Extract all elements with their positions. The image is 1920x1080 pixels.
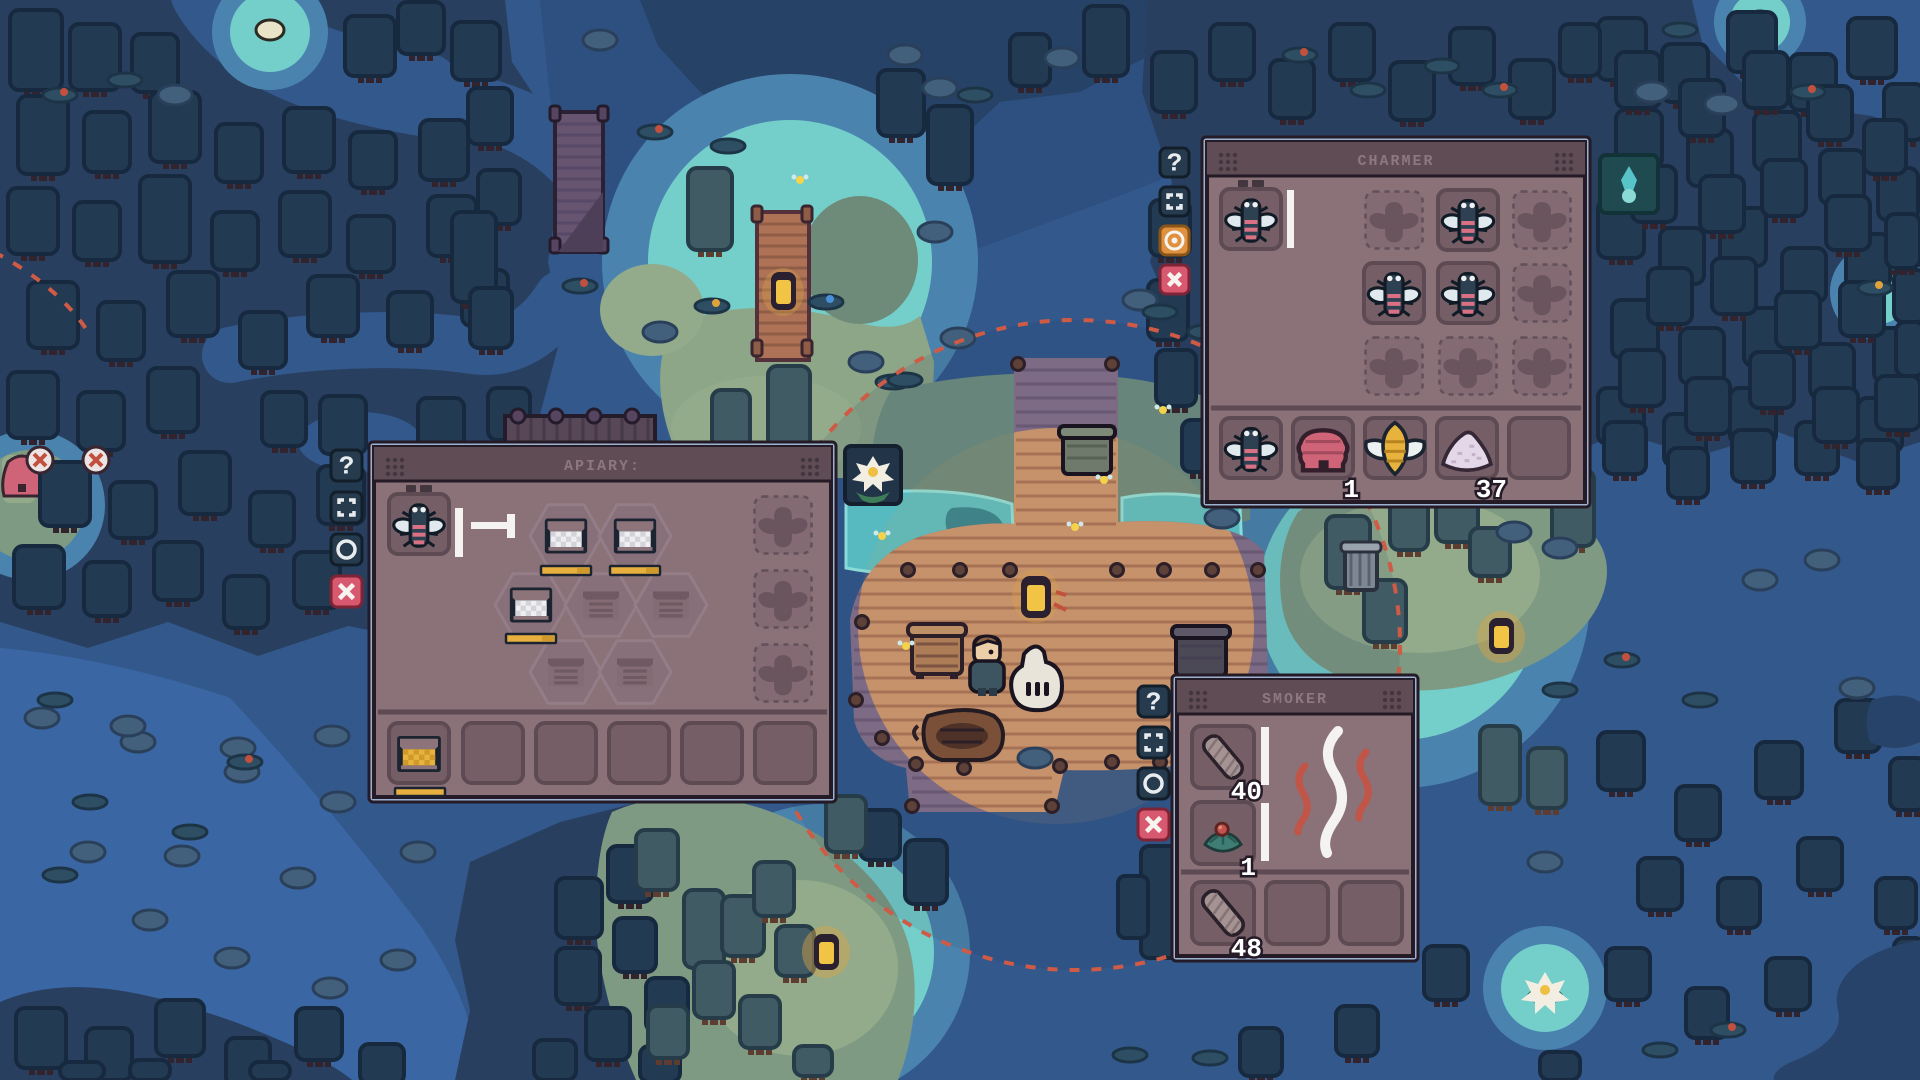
svg-text:APIARY:: APIARY: xyxy=(564,458,641,475)
svg-text:SMOKER: SMOKER xyxy=(1262,691,1328,708)
svg-text:?: ? xyxy=(1167,149,1183,179)
svg-text:1: 1 xyxy=(1343,475,1359,505)
svg-text:CHARMER: CHARMER xyxy=(1357,153,1434,170)
svg-text:1: 1 xyxy=(1240,853,1256,883)
svg-text:48: 48 xyxy=(1231,934,1262,964)
svg-text:37: 37 xyxy=(1476,475,1507,505)
svg-text:?: ? xyxy=(1146,688,1162,718)
svg-text:?: ? xyxy=(339,452,355,482)
